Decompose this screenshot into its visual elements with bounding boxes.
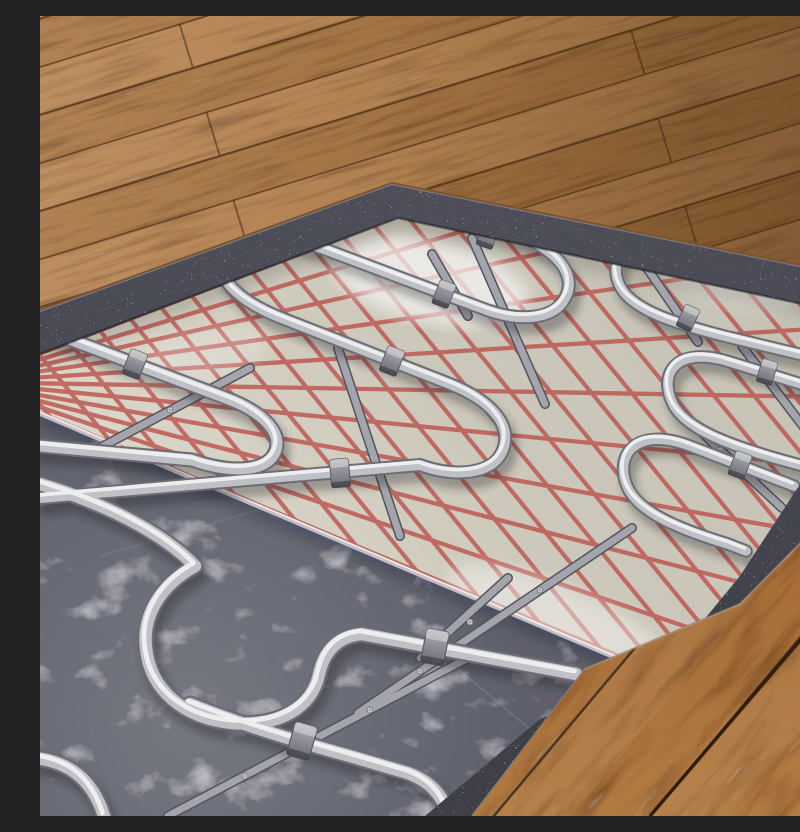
vignette — [40, 16, 800, 816]
render-canvas — [40, 16, 800, 816]
underfloor-heating-render: 3D render of an underfloor heating insta… — [40, 16, 800, 816]
